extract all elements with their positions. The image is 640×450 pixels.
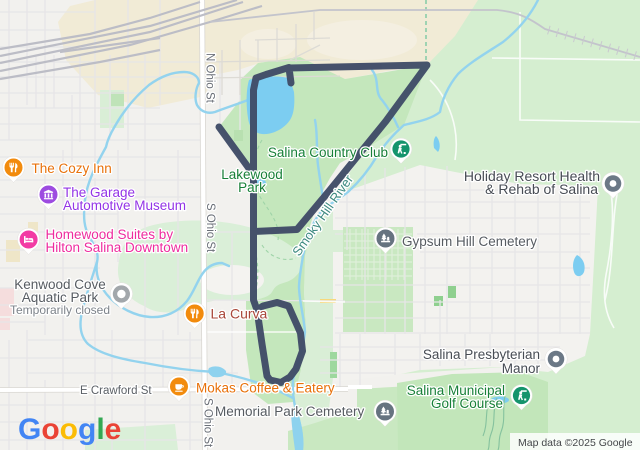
svg-text:& Rehab of Salina: & Rehab of Salina bbox=[485, 181, 598, 197]
svg-text:Hilton Salina Downtown: Hilton Salina Downtown bbox=[46, 240, 189, 255]
svg-text:Gypsum Hill Cemetery: Gypsum Hill Cemetery bbox=[402, 234, 537, 249]
svg-text:Manor: Manor bbox=[502, 361, 541, 376]
svg-text:Salina Presbyterian: Salina Presbyterian bbox=[423, 347, 540, 362]
svg-text:The Cozy Inn: The Cozy Inn bbox=[32, 161, 112, 176]
svg-text:Memorial Park Cemetery: Memorial Park Cemetery bbox=[215, 404, 365, 419]
svg-text:E Crawford St: E Crawford St bbox=[80, 385, 152, 397]
svg-text:Golf Course: Golf Course bbox=[431, 396, 503, 411]
svg-text:Google: Google bbox=[18, 413, 121, 446]
svg-text:Mokas Coffee & Eatery: Mokas Coffee & Eatery bbox=[196, 381, 335, 396]
svg-text:Temporarily closed: Temporarily closed bbox=[10, 303, 110, 317]
svg-text:Park: Park bbox=[238, 180, 266, 195]
svg-text:S Ohio St: S Ohio St bbox=[202, 398, 214, 448]
svg-text:Salina Country Club: Salina Country Club bbox=[268, 145, 388, 160]
svg-text:N Ohio St: N Ohio St bbox=[204, 53, 216, 104]
svg-text:S Ohio St: S Ohio St bbox=[204, 203, 216, 253]
svg-text:La Curva: La Curva bbox=[211, 306, 268, 322]
svg-text:Automotive Museum: Automotive Museum bbox=[63, 198, 186, 213]
svg-text:Map data ©2025 Google: Map data ©2025 Google bbox=[518, 437, 633, 449]
